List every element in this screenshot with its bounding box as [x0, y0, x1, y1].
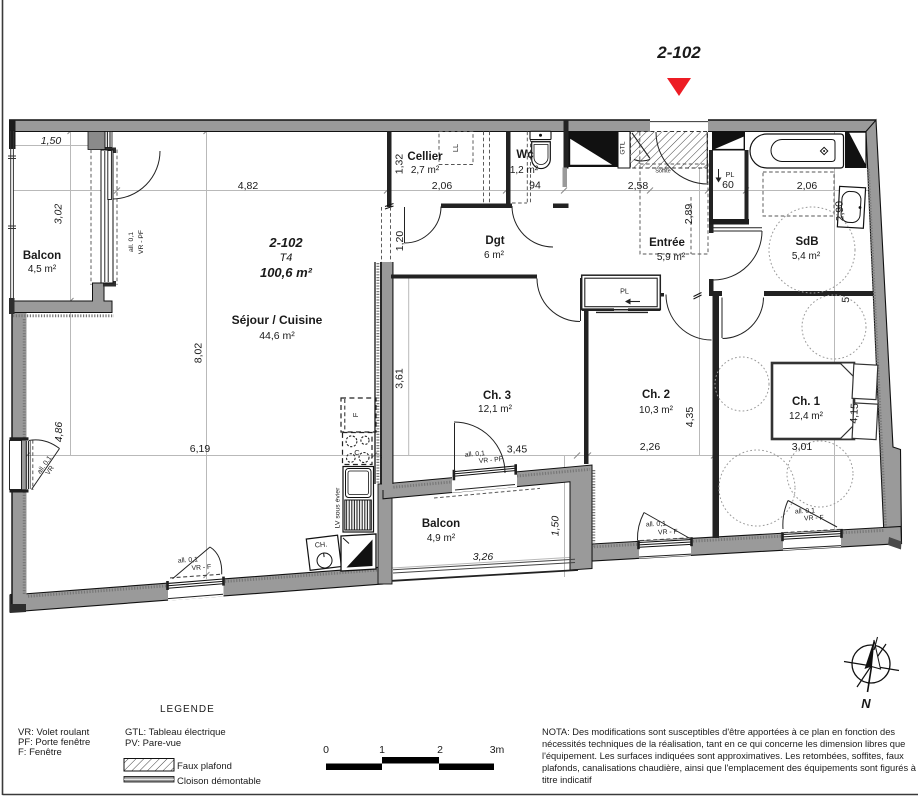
- svg-text:l'équipement. Les surfaces ind: l'équipement. Les surfaces indiquées son…: [542, 751, 904, 761]
- svg-text:100,6 m²: 100,6 m²: [260, 265, 313, 280]
- svg-text:PV: Pare-vue: PV: Pare-vue: [125, 738, 181, 749]
- svg-text:F: Fenêtre: F: Fenêtre: [18, 747, 62, 758]
- svg-text:4,82: 4,82: [238, 180, 259, 192]
- svg-text:VR - F: VR - F: [191, 564, 211, 572]
- svg-text:Cloison démontable: Cloison démontable: [177, 776, 261, 787]
- svg-text:Ch. 2: Ch. 2: [642, 389, 670, 401]
- svg-text:2,89: 2,89: [683, 204, 695, 225]
- svg-text:2,06: 2,06: [432, 180, 453, 192]
- svg-text:SdB: SdB: [796, 236, 819, 248]
- svg-text:1,32: 1,32: [394, 154, 406, 175]
- svg-text:3,02: 3,02: [53, 204, 65, 225]
- svg-text:GTL: Tableau électrique: GTL: Tableau électrique: [125, 727, 226, 738]
- svg-text:1,50: 1,50: [41, 135, 62, 147]
- svg-text:all. 0,1: all. 0,1: [128, 232, 135, 252]
- svg-text:12,4 m²: 12,4 m²: [789, 411, 824, 422]
- svg-text:Ch. 1: Ch. 1: [792, 396, 821, 408]
- svg-text:6 m²: 6 m²: [484, 250, 505, 261]
- svg-text:2-102: 2-102: [656, 43, 701, 62]
- svg-text:2,58: 2,58: [628, 180, 649, 192]
- svg-text:all. 0,1: all. 0,1: [178, 556, 199, 564]
- svg-text:all. 0,1: all. 0,1: [646, 520, 667, 528]
- svg-text:8,02: 8,02: [193, 343, 205, 364]
- svg-text:10,3 m²: 10,3 m²: [639, 405, 674, 416]
- svg-text:LV sous évier: LV sous évier: [335, 487, 342, 528]
- svg-text:3m: 3m: [490, 744, 505, 756]
- svg-text:3,45: 3,45: [507, 444, 528, 456]
- svg-text:4,86: 4,86: [53, 422, 65, 443]
- svg-text:GTL: GTL: [620, 141, 627, 154]
- svg-text:2,06: 2,06: [797, 180, 818, 192]
- svg-text:4,5 m²: 4,5 m²: [28, 264, 57, 275]
- svg-text:Dgt: Dgt: [485, 235, 504, 247]
- svg-text:N: N: [861, 696, 871, 711]
- svg-text:94: 94: [529, 180, 541, 192]
- svg-text:1,20: 1,20: [394, 231, 406, 252]
- svg-text:nécessités techniques de la ré: nécessités techniques de la réalisation,…: [542, 739, 905, 749]
- svg-text:5,4 m²: 5,4 m²: [792, 251, 821, 262]
- svg-text:Séjour / Cuisine: Séjour / Cuisine: [232, 313, 323, 327]
- svg-text:VR - PF: VR - PF: [138, 230, 145, 254]
- svg-text:60: 60: [722, 179, 734, 191]
- svg-text:C: C: [354, 448, 360, 457]
- svg-text:3,26: 3,26: [473, 551, 494, 563]
- svg-text:5: 5: [840, 296, 852, 303]
- svg-text:Entrée: Entrée: [649, 237, 685, 249]
- svg-text:1,2 m²: 1,2 m²: [510, 165, 539, 176]
- svg-text:F: F: [351, 412, 360, 417]
- svg-text:PL: PL: [726, 170, 735, 179]
- svg-text:4,9 m²: 4,9 m²: [427, 533, 456, 544]
- svg-text:VR - F: VR - F: [804, 514, 824, 522]
- svg-text:2,7 m²: 2,7 m²: [411, 165, 440, 176]
- svg-text:6,19: 6,19: [190, 443, 211, 455]
- svg-text:Balcon: Balcon: [422, 518, 460, 530]
- svg-text:PL: PL: [620, 287, 629, 296]
- svg-text:1,50: 1,50: [550, 516, 562, 537]
- svg-text:Wc: Wc: [516, 149, 534, 161]
- svg-text:plafonds, canalisations chaudi: plafonds, canalisations chaudière, ainsi…: [542, 763, 917, 773]
- svg-text:VR - F: VR - F: [658, 528, 678, 536]
- svg-text:1: 1: [379, 744, 385, 756]
- svg-text:2: 2: [437, 744, 443, 756]
- svg-text:2,26: 2,26: [640, 441, 661, 453]
- svg-text:titre indicatif: titre indicatif: [542, 775, 592, 785]
- svg-text:NOTA: Des modifications sont s: NOTA: Des modifications sont susceptible…: [542, 727, 895, 737]
- svg-text:Balcon: Balcon: [23, 250, 61, 262]
- svg-text:Faux plafond: Faux plafond: [177, 761, 232, 772]
- svg-text:4,35: 4,35: [684, 407, 696, 428]
- svg-text:Soffite: Soffite: [655, 169, 671, 175]
- svg-text:44,6 m²: 44,6 m²: [259, 330, 295, 342]
- svg-text:Cellier: Cellier: [407, 151, 443, 163]
- svg-text:LL: LL: [451, 144, 460, 152]
- svg-text:CH.: CH.: [314, 540, 327, 550]
- svg-text:12,1 m²: 12,1 m²: [478, 404, 513, 415]
- svg-text:5,9 m²: 5,9 m²: [657, 252, 686, 263]
- svg-text:T4: T4: [280, 252, 293, 264]
- svg-text:4,15: 4,15: [848, 403, 861, 424]
- svg-text:3,61: 3,61: [394, 368, 406, 389]
- svg-text:0: 0: [323, 744, 329, 756]
- svg-text:LEGENDE: LEGENDE: [160, 704, 215, 715]
- svg-text:3,01: 3,01: [792, 441, 813, 453]
- svg-text:2,90: 2,90: [833, 200, 846, 221]
- svg-text:Ch. 3: Ch. 3: [483, 390, 511, 402]
- svg-text:2-102: 2-102: [268, 235, 303, 250]
